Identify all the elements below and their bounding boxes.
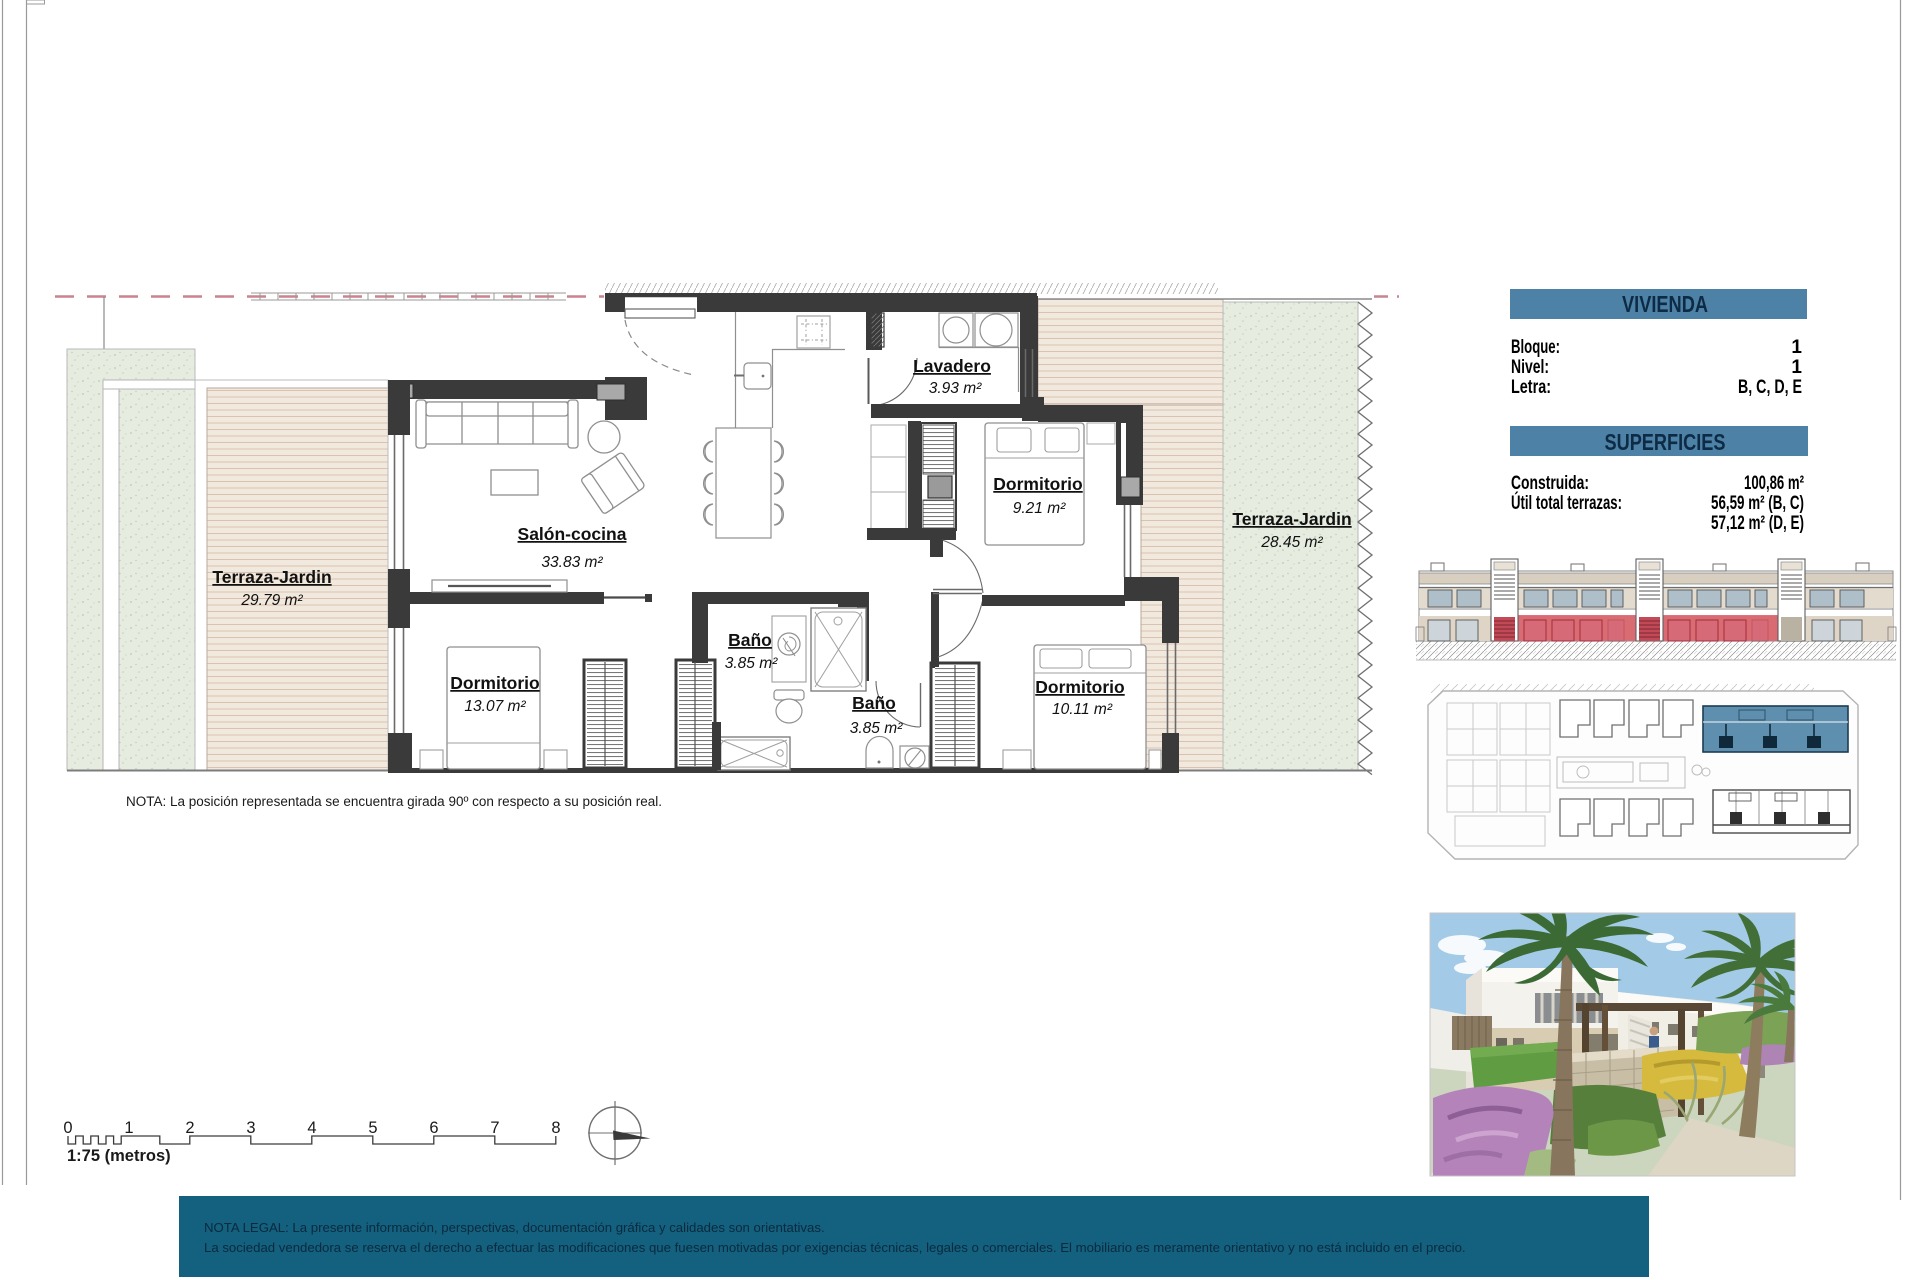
svg-text:57,12 m² (D, E): 57,12 m² (D, E): [1711, 513, 1804, 534]
svg-text:9.21 m²: 9.21 m²: [1013, 500, 1066, 517]
svg-text:0: 0: [63, 1119, 72, 1137]
svg-text:100,86 m²: 100,86 m²: [1744, 473, 1804, 494]
svg-text:7: 7: [490, 1119, 499, 1137]
svg-text:Letra:: Letra:: [1511, 377, 1551, 398]
svg-text:Salón-cocina: Salón-cocina: [518, 524, 627, 544]
svg-text:Terraza-Jardin: Terraza-Jardin: [1232, 509, 1351, 529]
svg-text:Dormitorio: Dormitorio: [1035, 677, 1124, 697]
svg-text:Útil total terrazas:: Útil total terrazas:: [1511, 492, 1622, 514]
svg-text:3.85 m²: 3.85 m²: [850, 720, 903, 737]
svg-text:Terraza-Jardin: Terraza-Jardin: [212, 567, 331, 587]
svg-text:5: 5: [368, 1119, 377, 1137]
svg-text:Lavadero: Lavadero: [913, 356, 991, 376]
svg-text:1: 1: [124, 1119, 133, 1137]
svg-text:3: 3: [246, 1119, 255, 1137]
svg-text:Bloque:: Bloque:: [1511, 337, 1560, 358]
svg-text:28.45 m²: 28.45 m²: [1260, 534, 1323, 551]
svg-text:33.83 m²: 33.83 m²: [541, 554, 603, 571]
svg-text:4: 4: [307, 1119, 316, 1137]
svg-text:Dormitorio: Dormitorio: [993, 474, 1082, 494]
svg-text:3.85 m²: 3.85 m²: [725, 655, 778, 672]
svg-text:NOTA LEGAL: La presente inform: NOTA LEGAL: La presente información, per…: [204, 1220, 825, 1235]
svg-text:8: 8: [551, 1119, 560, 1137]
svg-text:1: 1: [1791, 357, 1802, 378]
svg-text:6: 6: [429, 1119, 438, 1137]
svg-text:29.79 m²: 29.79 m²: [240, 592, 303, 609]
svg-text:3.93 m²: 3.93 m²: [929, 380, 982, 397]
svg-text:2: 2: [185, 1119, 194, 1137]
svg-text:B, C, D, E: B, C, D, E: [1738, 377, 1802, 398]
svg-text:1: 1: [1791, 337, 1802, 358]
svg-text:Nivel:: Nivel:: [1511, 357, 1549, 378]
svg-text:56,59 m² (B, C): 56,59 m² (B, C): [1711, 493, 1804, 514]
svg-text:La sociedad vendedora se reser: La sociedad vendedora se reserva el dere…: [204, 1240, 1466, 1255]
svg-text:Baño: Baño: [728, 630, 772, 650]
svg-text:VIVIENDA: VIVIENDA: [1622, 291, 1708, 317]
svg-text:1:75 (metros): 1:75 (metros): [67, 1147, 171, 1165]
svg-text:13.07 m²: 13.07 m²: [464, 698, 526, 715]
svg-text:SUPERFICIES: SUPERFICIES: [1605, 429, 1726, 455]
svg-text:Dormitorio: Dormitorio: [450, 673, 539, 693]
svg-text:Construida:: Construida:: [1511, 473, 1589, 494]
svg-text:Baño: Baño: [852, 693, 896, 713]
svg-text:10.11 m²: 10.11 m²: [1052, 701, 1113, 718]
svg-text:NOTA: La posición representada: NOTA: La posición representada se encuen…: [126, 794, 662, 809]
